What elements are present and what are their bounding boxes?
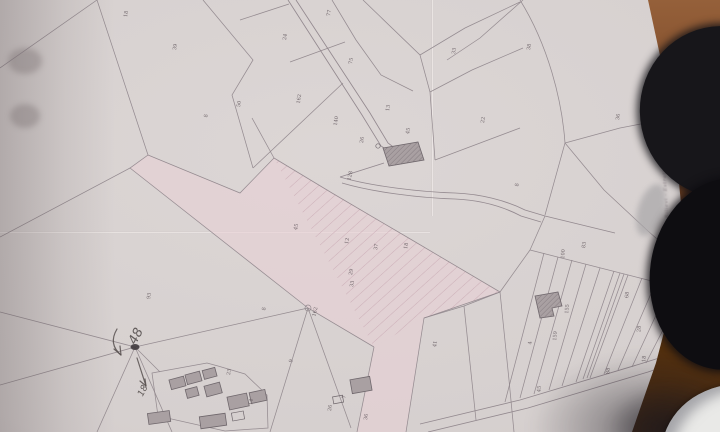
parcel-label: 14 — [249, 398, 255, 405]
parcel-label: 68 — [625, 292, 631, 299]
parcel-label: 45 — [406, 127, 412, 134]
parcel-label: 159 — [553, 331, 559, 341]
parcel-label: 50 — [237, 100, 243, 107]
parcel-label: 8 — [262, 307, 267, 311]
parcel-label: 155 — [565, 304, 571, 314]
parcel-label: 33 — [452, 47, 458, 54]
parcel-label: 8 — [204, 114, 209, 118]
parcel-label: 93 — [147, 292, 153, 299]
parcel-label: 83 — [582, 241, 588, 248]
parcel-label: 13 — [386, 104, 392, 111]
parcel-label: 8 — [515, 183, 520, 187]
parcel-label: 18 — [124, 10, 130, 17]
photo-of-cadastral-map: 1839824775016214075133345383612826839345… — [0, 0, 720, 432]
parcel-label: 26 — [360, 136, 366, 143]
parcel-label: 26 — [328, 404, 334, 411]
parcel-label: 4 — [528, 341, 533, 345]
parcel-label: 45 — [537, 386, 543, 393]
parcel-label: 77 — [327, 9, 333, 16]
parcel-label: 23 — [227, 368, 233, 375]
parcel-label: 39 — [173, 43, 179, 50]
parcel-label: 22 — [481, 116, 487, 123]
parcel-label: 28 — [637, 326, 643, 333]
parcel-label: 7 — [342, 395, 347, 399]
parcel-label: 100 — [561, 249, 567, 259]
parcel-label: 36 — [364, 413, 370, 420]
parcel-label: 75 — [349, 57, 355, 64]
parcel-label: 38 — [527, 43, 533, 50]
parcel-label: 41 — [433, 340, 439, 347]
parcel-label: 24 — [283, 33, 289, 40]
parcel-label: 36 — [616, 113, 622, 120]
parcel-label: 9 — [289, 359, 294, 363]
